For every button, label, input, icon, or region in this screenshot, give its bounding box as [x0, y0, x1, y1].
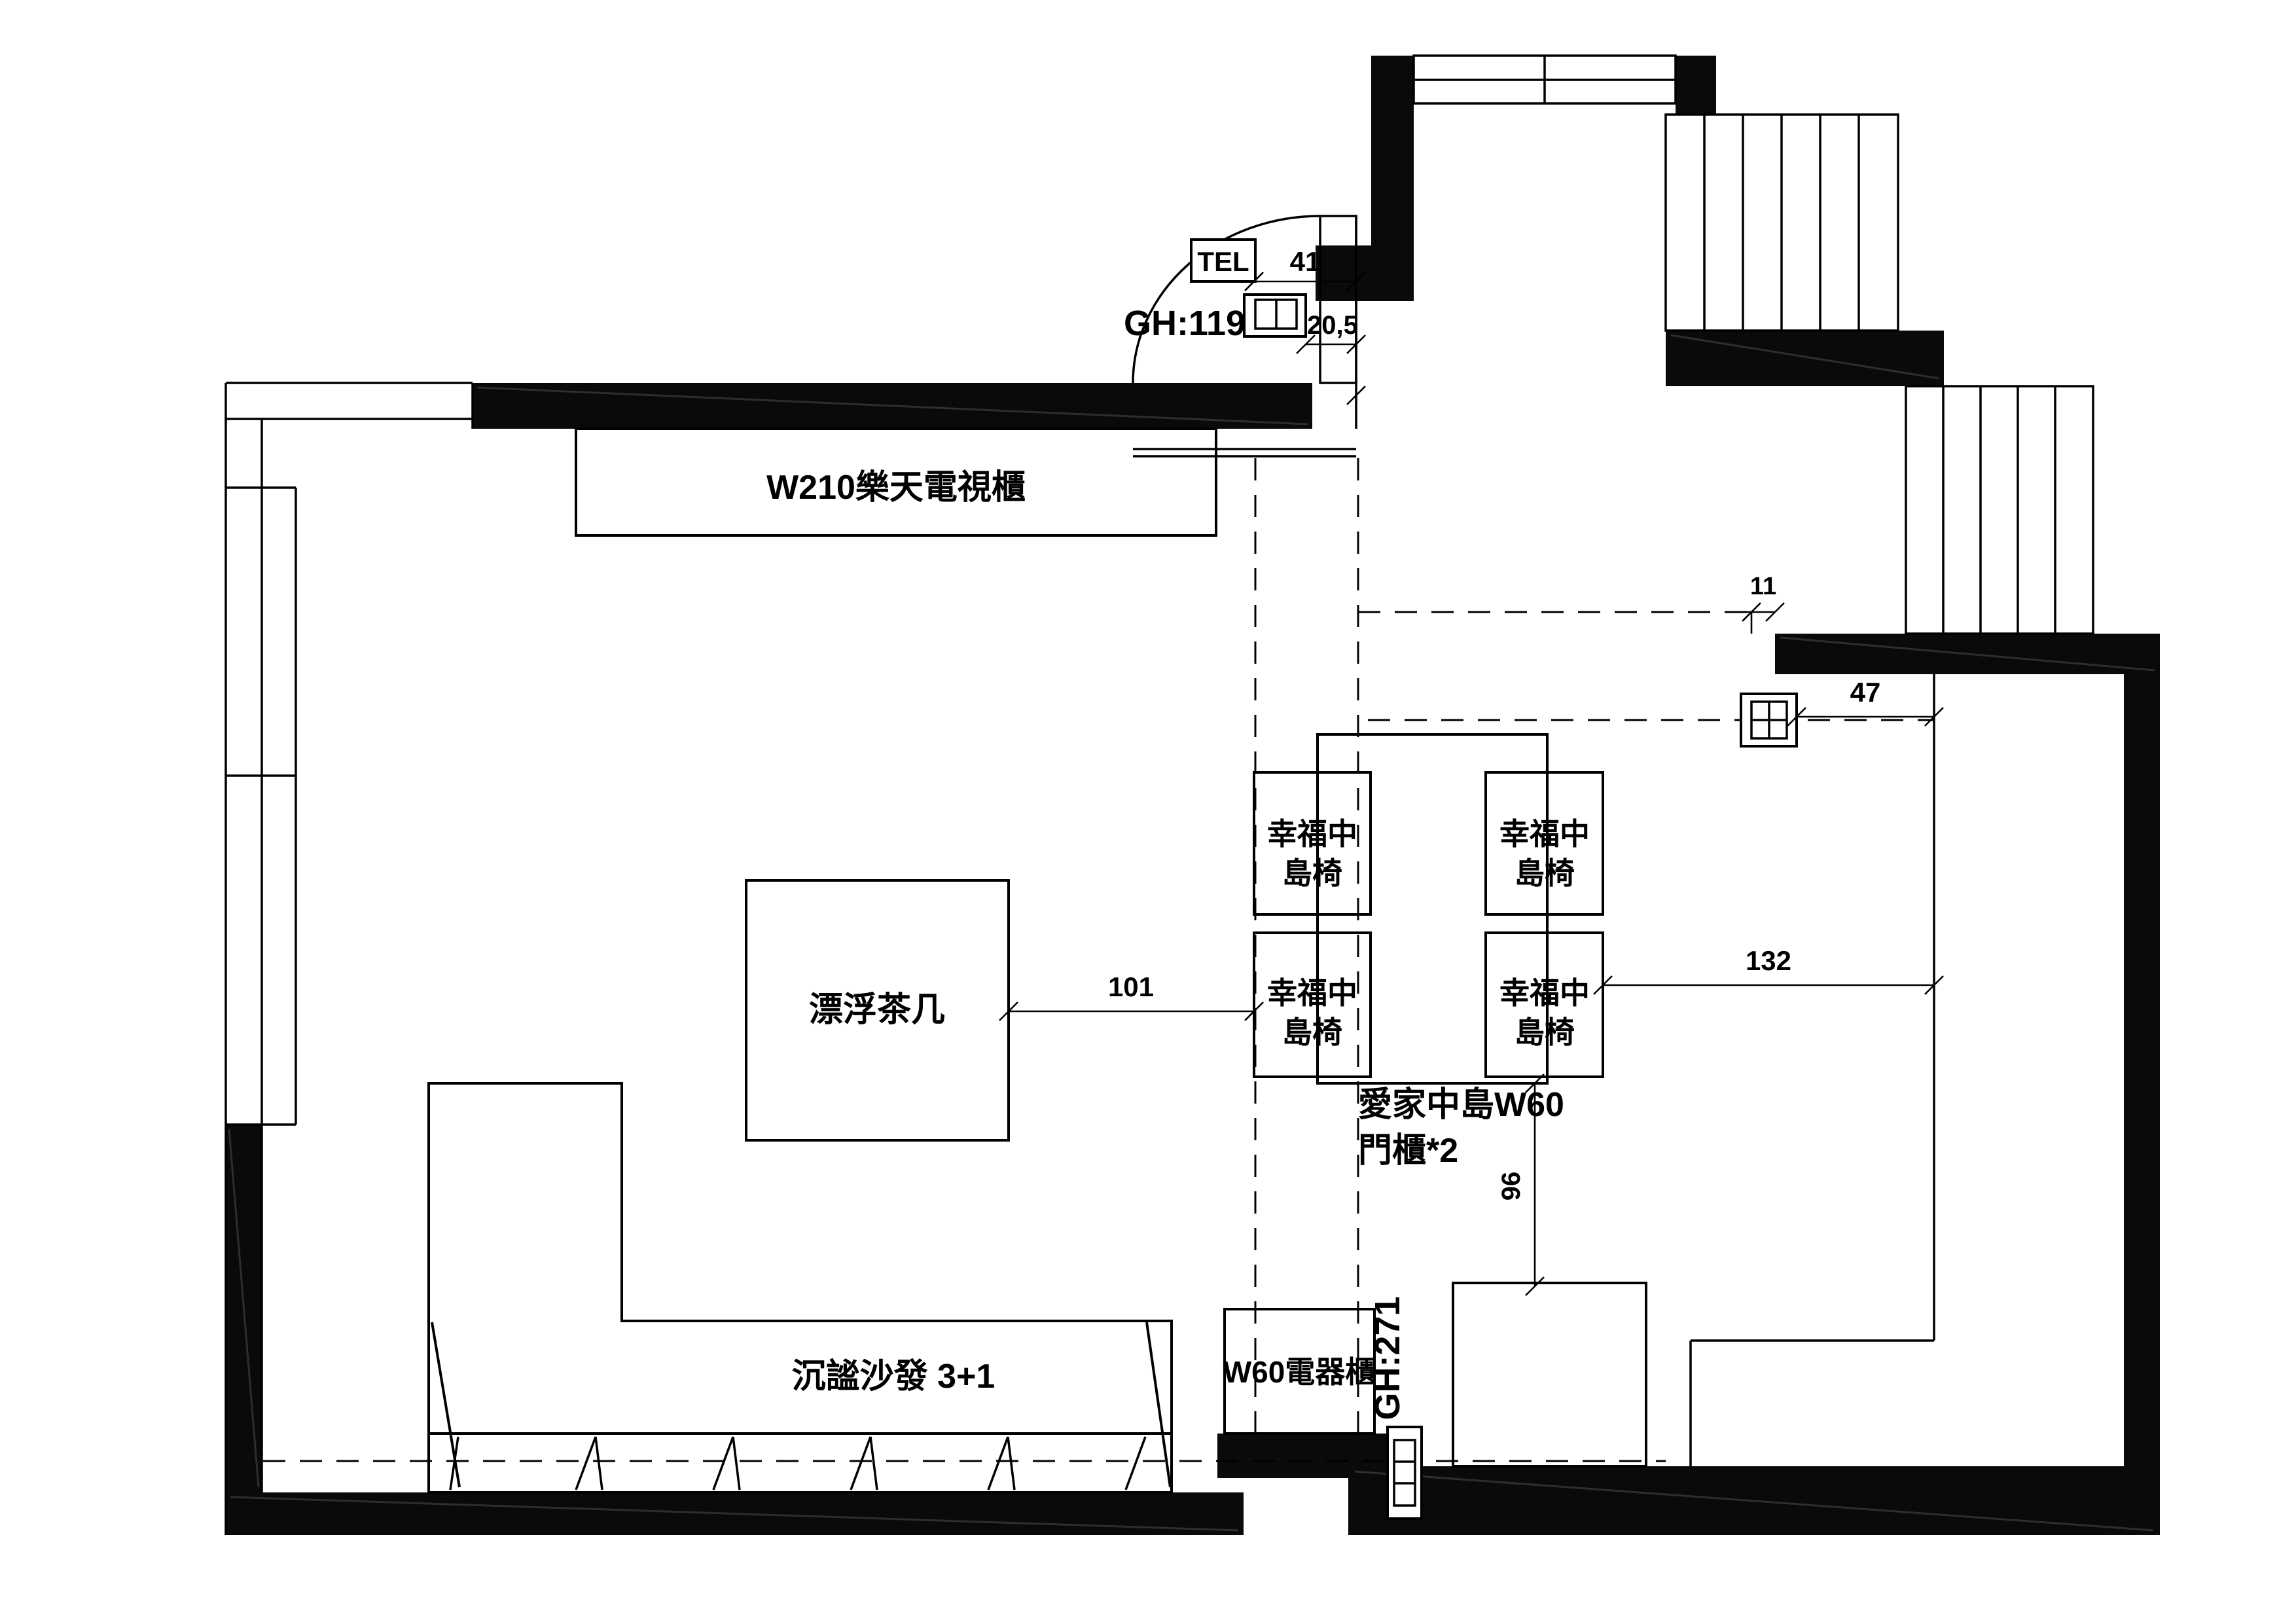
island-counter: [1318, 734, 1547, 1083]
interior-lines: [1691, 674, 1934, 1466]
chair-label: 島椅: [1282, 856, 1342, 890]
svg-text:20,5: 20,5: [1307, 311, 1358, 340]
chair-label: 幸福中: [1499, 817, 1590, 851]
floor-plan-page: W210樂天電視櫃 漂浮茶几 愛家中島W60 門櫃*2 幸福中 島椅 幸福中 島…: [0, 0, 2296, 1624]
island-label-line1: 愛家中島W60: [1358, 1086, 1564, 1124]
chair-label: 島椅: [1282, 1015, 1342, 1049]
sofa-label: 沉謐沙發 3+1: [792, 1358, 996, 1396]
windows-and-thin-walls: [226, 56, 1676, 1535]
tel-label: TEL: [1197, 246, 1249, 277]
door-height-entry-label: GH:119: [1124, 304, 1246, 343]
outlet-bottom: [1388, 1427, 1422, 1519]
reference-lines: [263, 458, 1934, 1461]
svg-text:101: 101: [1108, 971, 1154, 1002]
chair-label: 幸福中: [1267, 817, 1357, 851]
right-room-cabinet: [1453, 1283, 1646, 1466]
dim-table-to-island: 101: [999, 971, 1263, 1020]
dim-counter-gap: 47: [1787, 677, 1943, 726]
wall-stair-landing-1: [1666, 331, 1944, 386]
sofa-outline: [429, 1083, 1172, 1492]
svg-text:41: 41: [1290, 246, 1321, 277]
svg-text:47: 47: [1850, 677, 1881, 708]
chair-label: 幸福中: [1499, 976, 1590, 1010]
stair-flight-lower: [1906, 386, 2093, 634]
door-height-back-label: GH:271: [1368, 1296, 1407, 1420]
floor-plan-canvas: W210樂天電視櫃 漂浮茶几 愛家中島W60 門櫃*2 幸福中 島椅 幸福中 島…: [0, 0, 2296, 1624]
chair-label: 島椅: [1515, 856, 1575, 890]
dim-wall-offset: 11: [1734, 573, 1784, 634]
furniture: W210樂天電視櫃 漂浮茶几 愛家中島W60 門櫃*2 幸福中 島椅 幸福中 島…: [429, 429, 1646, 1492]
appliance-cabinet-label: W60電器櫃: [1223, 1355, 1376, 1389]
wall-right: [2124, 674, 2160, 1535]
wall-door-jamb-column: [1371, 56, 1414, 301]
sofa-cushions: [450, 1437, 1145, 1490]
coffee-table-label: 漂浮茶几: [809, 991, 945, 1029]
chair-label: 幸福中: [1267, 976, 1357, 1010]
svg-text:11: 11: [1750, 573, 1776, 600]
wall-door-jamb-foot: [1316, 245, 1371, 301]
dim-island-to-wall: 132: [1594, 945, 1943, 994]
island-label-line2: 門櫃*2: [1358, 1132, 1458, 1170]
sofa-armrest-right: [1147, 1322, 1170, 1487]
outlet-entry: [1244, 295, 1306, 336]
svg-text:96: 96: [1497, 1172, 1526, 1201]
chair-label: 島椅: [1515, 1015, 1575, 1049]
svg-text:132: 132: [1746, 945, 1791, 976]
tv-cabinet-label: W210樂天電視櫃: [766, 469, 1026, 507]
wall-window-column: [1676, 56, 1716, 115]
outlet-right: [1741, 694, 1797, 746]
